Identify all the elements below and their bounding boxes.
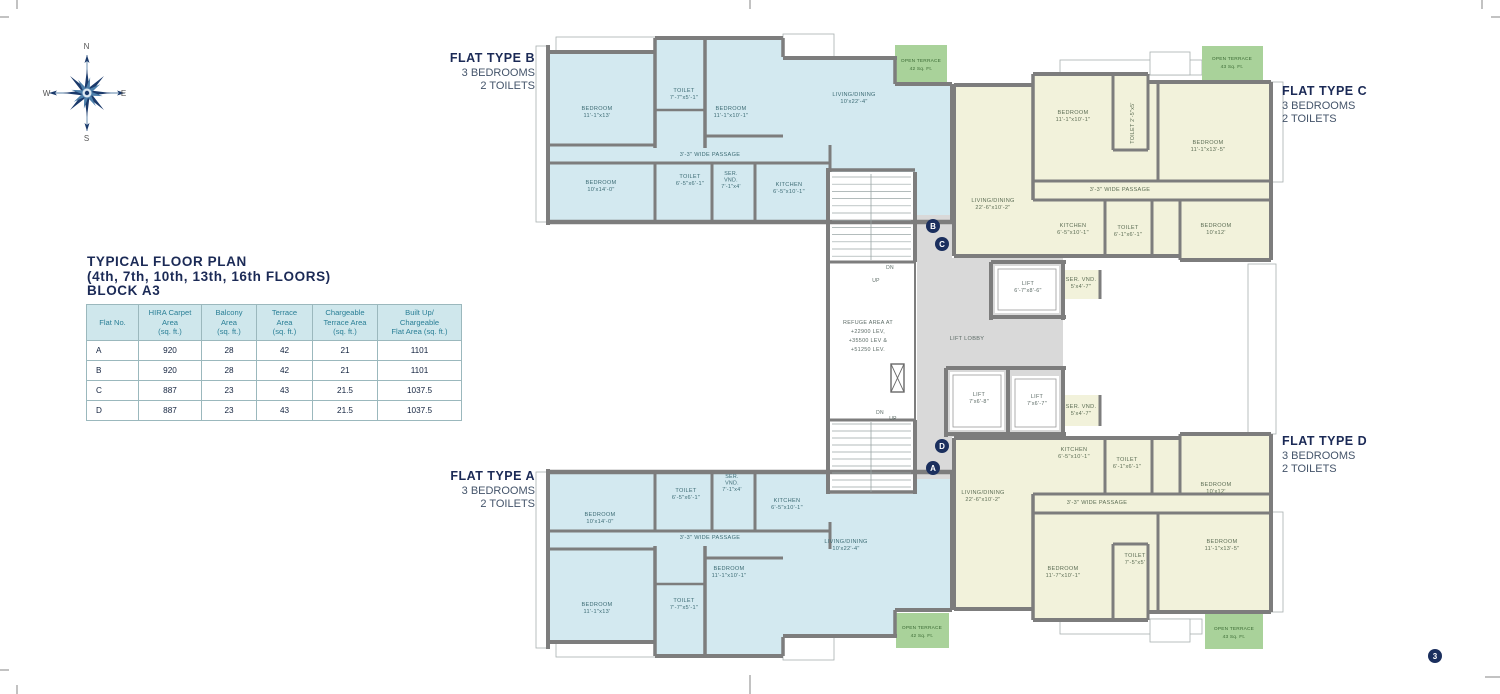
svg-text:KITCHEN: KITCHEN xyxy=(776,182,803,188)
svg-text:C: C xyxy=(939,240,945,249)
svg-text:BEDROOM: BEDROOM xyxy=(581,602,612,608)
svg-text:LIFT: LIFT xyxy=(1022,281,1035,287)
svg-text:42 Sq. Ft.: 42 Sq. Ft. xyxy=(910,66,933,72)
svg-text:11'-1"x10'-1": 11'-1"x10'-1" xyxy=(712,573,747,579)
svg-text:11'-7"x10'-1": 11'-7"x10'-1" xyxy=(1046,573,1081,579)
svg-text:N: N xyxy=(84,42,91,51)
svg-text:6'-5"x6'-1": 6'-5"x6'-1" xyxy=(672,495,700,501)
svg-text:OPEN TERRACE: OPEN TERRACE xyxy=(1212,56,1252,62)
svg-text:43 Sq. Ft.: 43 Sq. Ft. xyxy=(1221,64,1244,70)
svg-text:42 Sq. Ft.: 42 Sq. Ft. xyxy=(911,633,934,639)
svg-text:11'-1"x13'-5": 11'-1"x13'-5" xyxy=(1191,147,1226,153)
svg-text:BEDROOM: BEDROOM xyxy=(1057,110,1088,116)
svg-text:BEDROOM: BEDROOM xyxy=(1200,482,1231,488)
svg-text:UP: UP xyxy=(872,278,880,284)
svg-text:OPEN TERRACE: OPEN TERRACE xyxy=(902,625,942,631)
svg-text:TOILET: TOILET xyxy=(1124,553,1146,559)
svg-text:10'x14'-0": 10'x14'-0" xyxy=(587,187,614,193)
svg-text:BEDROOM: BEDROOM xyxy=(1200,223,1231,229)
svg-text:7'-7"x5'-1": 7'-7"x5'-1" xyxy=(670,95,698,101)
svg-text:SER.: SER. xyxy=(725,474,739,480)
svg-text:LIFT: LIFT xyxy=(1031,394,1044,400)
svg-text:LIVING/DINING: LIVING/DINING xyxy=(971,198,1014,204)
svg-text:10'x12': 10'x12' xyxy=(1206,489,1225,495)
svg-text:3'-3" WIDE PASSAGE: 3'-3" WIDE PASSAGE xyxy=(1067,500,1128,506)
svg-text:3'-3" WIDE PASSAGE: 3'-3" WIDE PASSAGE xyxy=(1090,187,1151,193)
svg-text:43 Sq. Ft.: 43 Sq. Ft. xyxy=(1223,634,1246,640)
svg-text:11'-1"x13': 11'-1"x13' xyxy=(584,609,611,615)
svg-text:TOILET 2'-5"x5': TOILET 2'-5"x5' xyxy=(1130,102,1136,143)
svg-text:7'x6'-7": 7'x6'-7" xyxy=(1027,401,1047,407)
svg-text:10'x12': 10'x12' xyxy=(1206,230,1225,236)
svg-text:7'-7"x5'-1": 7'-7"x5'-1" xyxy=(670,605,698,611)
svg-text:7'-1"x4': 7'-1"x4' xyxy=(721,184,741,190)
svg-text:22'-6"x10'-2": 22'-6"x10'-2" xyxy=(975,205,1010,211)
svg-text:OPEN TERRACE: OPEN TERRACE xyxy=(1214,626,1254,632)
svg-text:TOILET: TOILET xyxy=(679,174,701,180)
svg-text:10'x22'-4": 10'x22'-4" xyxy=(840,99,867,105)
svg-text:11'-1"x13'-5": 11'-1"x13'-5" xyxy=(1205,546,1240,552)
svg-text:DN: DN xyxy=(876,410,884,416)
svg-text:6'-5"x6'-1": 6'-5"x6'-1" xyxy=(676,181,704,187)
svg-text:OPEN TERRACE: OPEN TERRACE xyxy=(901,58,941,64)
svg-text:BEDROOM: BEDROOM xyxy=(715,106,746,112)
svg-text:S: S xyxy=(84,134,90,143)
svg-text:11'-1"x10'-1": 11'-1"x10'-1" xyxy=(1056,117,1091,123)
svg-text:LIFT: LIFT xyxy=(973,392,986,398)
svg-text:SER. VND.: SER. VND. xyxy=(1066,404,1097,410)
svg-text:TOILET: TOILET xyxy=(673,88,695,94)
svg-text:KITCHEN: KITCHEN xyxy=(1061,447,1088,453)
svg-text:+51250 LEV.: +51250 LEV. xyxy=(851,347,885,353)
svg-text:UP: UP xyxy=(889,416,897,422)
svg-text:7'-1"x4': 7'-1"x4' xyxy=(722,487,742,493)
svg-text:REFUGE AREA AT: REFUGE AREA AT xyxy=(843,320,893,326)
svg-text:B: B xyxy=(930,222,936,231)
svg-text:6'-5"x10'-1": 6'-5"x10'-1" xyxy=(773,189,805,195)
svg-text:D: D xyxy=(939,442,945,451)
svg-text:BEDROOM: BEDROOM xyxy=(585,180,616,186)
svg-text:BEDROOM: BEDROOM xyxy=(1192,140,1223,146)
svg-text:W: W xyxy=(43,89,52,98)
svg-text:BEDROOM: BEDROOM xyxy=(584,512,615,518)
svg-text:10'x22'-4": 10'x22'-4" xyxy=(832,546,859,552)
svg-text:BEDROOM: BEDROOM xyxy=(1047,566,1078,572)
svg-text:3: 3 xyxy=(1433,652,1438,661)
svg-text:6'-1"x6'-1": 6'-1"x6'-1" xyxy=(1114,232,1142,238)
svg-text:5'x4'-7": 5'x4'-7" xyxy=(1071,411,1092,417)
svg-text:LIVING/DINING: LIVING/DINING xyxy=(824,539,867,545)
svg-text:22'-6"x10'-2": 22'-6"x10'-2" xyxy=(965,497,1000,503)
svg-text:DN: DN xyxy=(886,265,894,271)
svg-text:3'-3" WIDE PASSAGE: 3'-3" WIDE PASSAGE xyxy=(680,152,741,158)
svg-text:+22900 LEV,: +22900 LEV, xyxy=(851,329,885,335)
svg-text:VND.: VND. xyxy=(725,481,739,487)
svg-text:6'-5"x10'-1": 6'-5"x10'-1" xyxy=(1057,230,1089,236)
svg-text:BEDROOM: BEDROOM xyxy=(1206,539,1237,545)
svg-text:SER.: SER. xyxy=(724,171,738,177)
svg-text:BEDROOM: BEDROOM xyxy=(713,566,744,572)
svg-text:6'-1"x6'-1": 6'-1"x6'-1" xyxy=(1113,464,1141,470)
svg-text:LIVING/DINING: LIVING/DINING xyxy=(832,92,875,98)
svg-text:5'x4'-7": 5'x4'-7" xyxy=(1071,284,1092,290)
svg-text:LIVING/DINING: LIVING/DINING xyxy=(961,490,1004,496)
svg-text:A: A xyxy=(930,464,936,473)
svg-text:6'-5"x10'-1": 6'-5"x10'-1" xyxy=(771,505,803,511)
svg-text:E: E xyxy=(121,89,127,98)
svg-text:TOILET: TOILET xyxy=(673,598,695,604)
svg-text:11'-1"x13': 11'-1"x13' xyxy=(584,113,611,119)
svg-text:LIFT LOBBY: LIFT LOBBY xyxy=(950,336,985,342)
svg-text:VND.: VND. xyxy=(724,178,738,184)
svg-text:KITCHEN: KITCHEN xyxy=(774,498,801,504)
svg-text:3'-3" WIDE PASSAGE: 3'-3" WIDE PASSAGE xyxy=(680,535,741,541)
svg-text:6'-5"x10'-1": 6'-5"x10'-1" xyxy=(1058,454,1090,460)
svg-text:7'-5"x5': 7'-5"x5' xyxy=(1125,560,1146,566)
svg-text:10'x14'-0": 10'x14'-0" xyxy=(586,519,613,525)
svg-text:+35500 LEV &: +35500 LEV & xyxy=(849,338,888,344)
svg-text:SER. VND.: SER. VND. xyxy=(1066,277,1097,283)
svg-text:11'-1"x10'-1": 11'-1"x10'-1" xyxy=(714,113,749,119)
svg-text:KITCHEN: KITCHEN xyxy=(1060,223,1087,229)
svg-text:TOILET: TOILET xyxy=(1116,457,1138,463)
svg-text:6'-7"x8'-6": 6'-7"x8'-6" xyxy=(1014,288,1041,294)
svg-text:BEDROOM: BEDROOM xyxy=(581,106,612,112)
svg-text:7'x6'-8": 7'x6'-8" xyxy=(969,399,989,405)
svg-text:TOILET: TOILET xyxy=(675,488,697,494)
svg-text:TOILET: TOILET xyxy=(1117,225,1139,231)
